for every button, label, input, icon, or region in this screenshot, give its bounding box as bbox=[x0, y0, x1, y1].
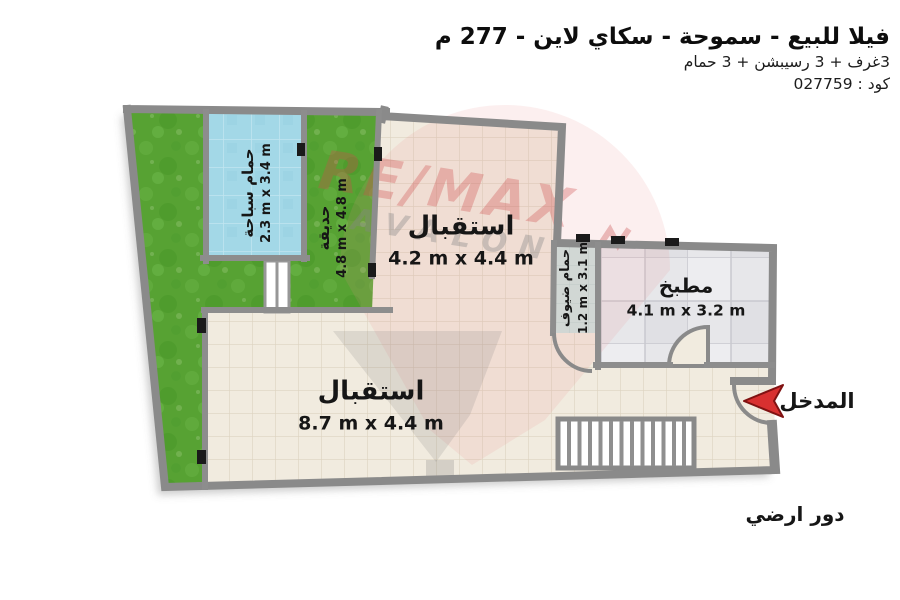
pool-label: حمام سباحة 2.3 m x 3.4 m bbox=[239, 143, 275, 243]
header: فيلا للبيع - سموحة - سكاي لاين - 277 م 3… bbox=[435, 24, 890, 93]
guest-bath-dims: 1.2 m x 3.1 m bbox=[576, 242, 590, 334]
pool-name: حمام سباحة bbox=[239, 143, 257, 243]
guest-bath-name: حمام ضيوف bbox=[558, 242, 574, 334]
reception-top-name: استقبال bbox=[388, 212, 534, 243]
pool-dims: 2.3 m x 3.4 m bbox=[259, 143, 275, 243]
reception-main-dims: 8.7 m x 4.4 m bbox=[298, 413, 444, 436]
guest-bath-label: حمام ضيوف 1.2 m x 3.1 m bbox=[558, 242, 590, 334]
kitchen-label: مطبخ 4.1 m x 3.2 m bbox=[627, 274, 746, 321]
kitchen-name: مطبخ bbox=[627, 274, 746, 298]
reception-top-dims: 4.2 m x 4.4 m bbox=[388, 248, 534, 271]
reception-main-name: استقبال bbox=[298, 377, 444, 408]
header-code: كود : 027759 bbox=[435, 75, 890, 93]
garden-label: حديقة 4.8 m x 4.8 m bbox=[315, 178, 351, 278]
staircase bbox=[558, 419, 694, 468]
reception-main-label: استقبال 8.7 m x 4.4 m bbox=[298, 377, 444, 436]
floor-level-label: دور ارضي bbox=[745, 502, 844, 526]
reception-top-label: استقبال 4.2 m x 4.4 m bbox=[388, 212, 534, 271]
pool-walkway bbox=[265, 261, 289, 312]
garden-name: حديقة bbox=[315, 178, 333, 278]
real-estate-flyer: RE/MAX AVALON فيلا للبيع bbox=[0, 0, 900, 600]
page-title: فيلا للبيع - سموحة - سكاي لاين - 277 م bbox=[435, 24, 890, 50]
garden-dims: 4.8 m x 4.8 m bbox=[335, 178, 351, 278]
kitchen-dims: 4.1 m x 3.2 m bbox=[627, 302, 746, 321]
entrance-label: المدخل bbox=[779, 389, 854, 413]
header-subtitle: 3غرف + 3 رسيبشن + 3 حمام bbox=[435, 53, 890, 71]
